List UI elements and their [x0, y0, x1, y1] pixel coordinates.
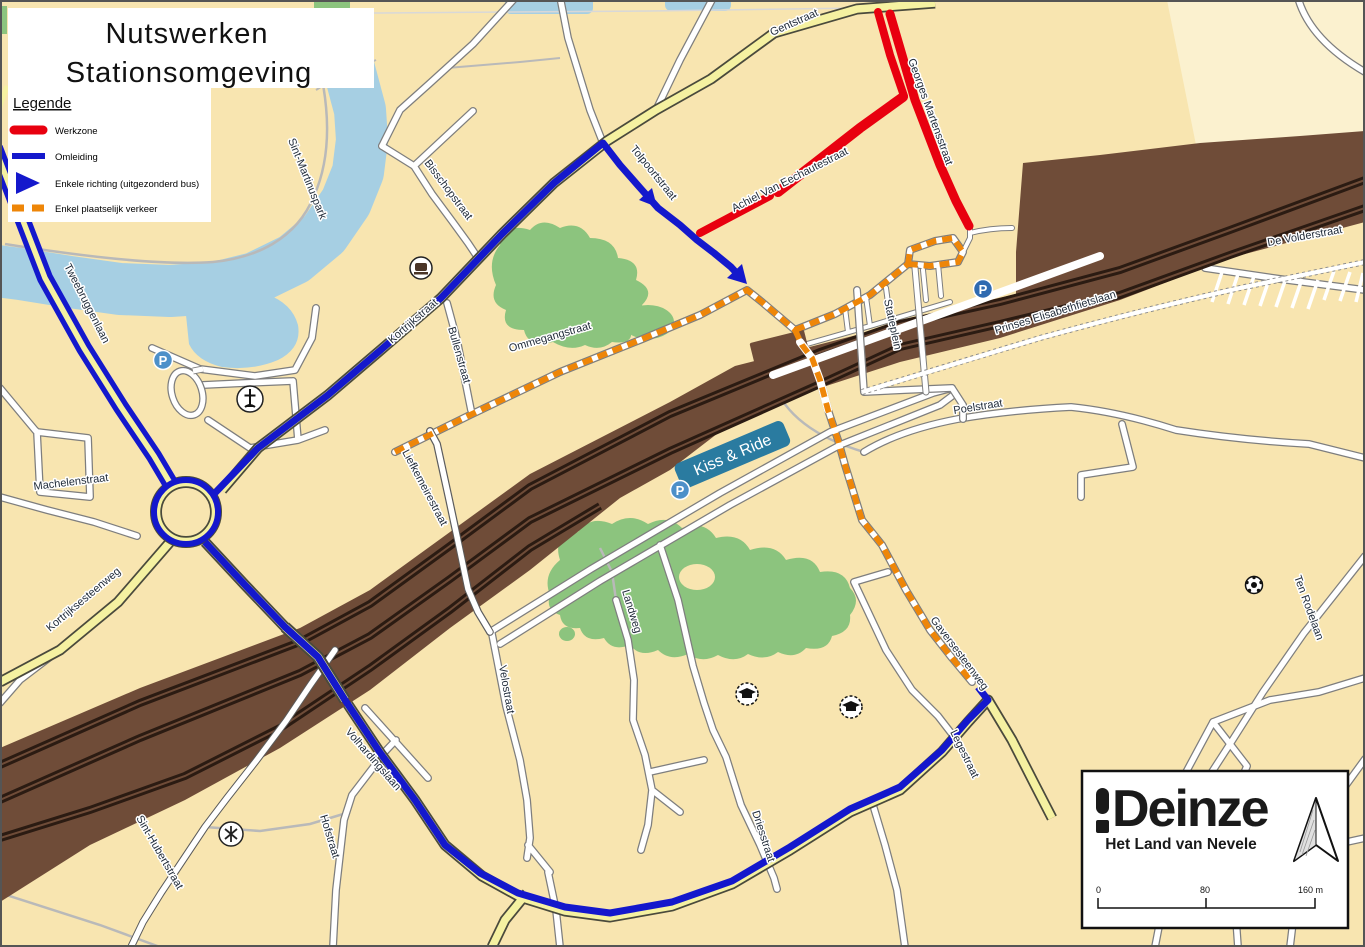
- svg-text:Enkel plaatselijk verkeer: Enkel plaatselijk verkeer: [55, 204, 157, 215]
- svg-text:Enkele richting (uitgezonderd: Enkele richting (uitgezonderd bus): [55, 179, 199, 190]
- svg-text:P: P: [676, 483, 685, 498]
- svg-text:Deinze: Deinze: [1112, 780, 1269, 838]
- svg-text:Legende: Legende: [13, 95, 71, 112]
- svg-text:Nutswerken: Nutswerken: [105, 18, 268, 50]
- svg-text:160 m: 160 m: [1298, 885, 1323, 895]
- svg-text:Werkzone: Werkzone: [55, 126, 98, 137]
- svg-text:0: 0: [1096, 885, 1101, 895]
- svg-text:P: P: [979, 282, 988, 297]
- svg-text:Omleiding: Omleiding: [55, 152, 98, 163]
- svg-text:Het Land van Nevele: Het Land van Nevele: [1105, 836, 1257, 853]
- svg-text:80: 80: [1200, 885, 1210, 895]
- svg-text:Stationsomgeving: Stationsomgeving: [66, 57, 313, 89]
- svg-text:P: P: [159, 353, 168, 368]
